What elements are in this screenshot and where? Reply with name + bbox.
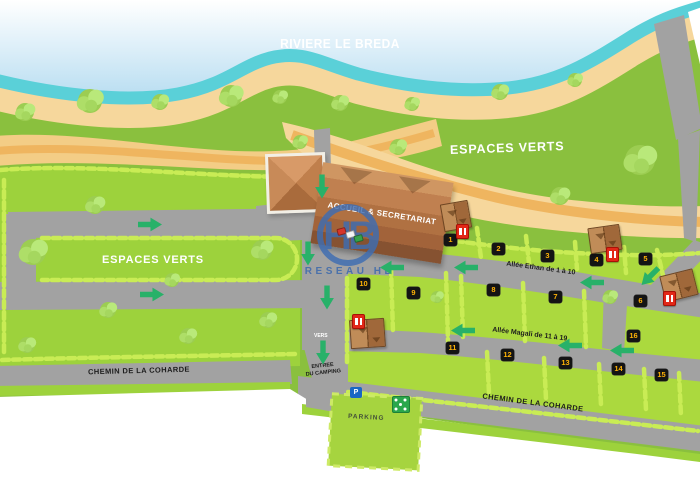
campground-map: ACCUEIL & SECRETARIAT HB RESEAU HB RIVIE… bbox=[0, 0, 700, 492]
plot-badge-9: 9 bbox=[407, 287, 420, 299]
plot-badge-8: 8 bbox=[487, 284, 500, 296]
electric-post-icon bbox=[352, 314, 365, 329]
plot-badge-13: 13 bbox=[559, 357, 572, 369]
plot-badge-6: 6 bbox=[634, 295, 647, 307]
plot-badge-2: 2 bbox=[492, 243, 505, 255]
electric-post-icon bbox=[456, 224, 469, 239]
vers-label: VERS bbox=[314, 333, 328, 339]
plot-badge-15: 15 bbox=[655, 369, 668, 381]
plot-badge-4: 4 bbox=[590, 254, 603, 266]
playground-icon bbox=[392, 396, 410, 413]
plot-badge-12: 12 bbox=[501, 349, 514, 361]
plot-badge-3: 3 bbox=[541, 250, 554, 262]
plot-badge-11: 11 bbox=[446, 342, 459, 354]
espaces-verts-left-label: ESPACES VERTS bbox=[102, 254, 204, 266]
plot-badge-7: 7 bbox=[549, 291, 562, 303]
parking-sign-icon: P bbox=[350, 387, 362, 398]
plot-badge-16: 16 bbox=[627, 330, 640, 342]
plot-badge-10: 10 bbox=[357, 278, 370, 290]
electric-post-icon bbox=[606, 247, 619, 262]
plot-badge-5: 5 bbox=[639, 253, 652, 265]
plot-badge-14: 14 bbox=[612, 363, 625, 375]
river-label: RIVIERE LE BREDA bbox=[262, 36, 418, 51]
electric-post-icon bbox=[663, 291, 676, 306]
